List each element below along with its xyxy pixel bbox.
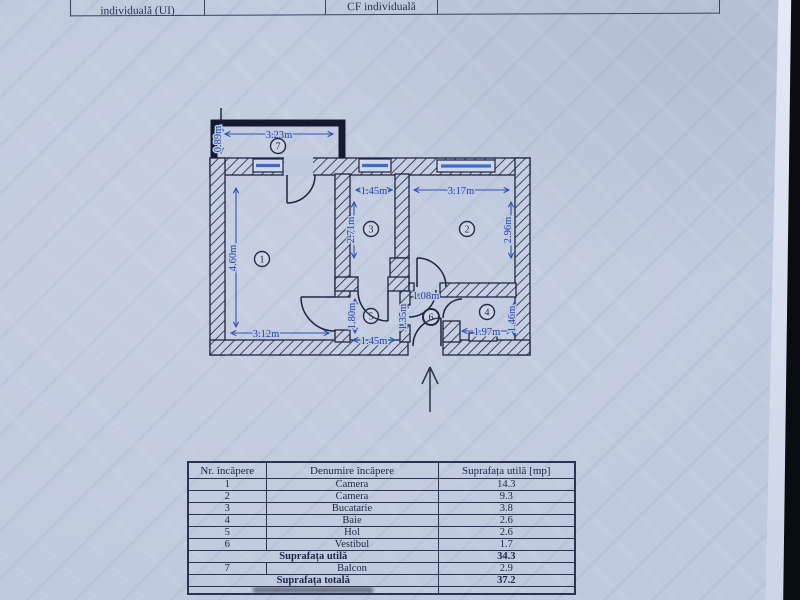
cell-area: 3.8 [438,503,575,515]
cell-nr: 6 [188,539,266,551]
svg-text:4: 4 [485,308,490,319]
room-number-5: 5 [364,309,379,324]
cell-nr: 4 [188,515,266,527]
cell-nr: 3 [188,503,266,515]
cell-name: Camera [266,491,438,503]
dim-label: 0.89m [213,126,224,153]
dim-label: 1.35m [398,304,409,331]
dim-label: 3.17m [448,186,475,197]
total-row: Suprafața totală 37.2 [188,575,575,587]
table-row: 4 Baie 2.6 [188,515,575,527]
dim-label: 1.80m [347,303,358,330]
window [437,160,495,172]
svg-text:7: 7 [276,142,281,153]
window [253,159,283,172]
subtotal-label: Suprafața utilă [188,551,438,563]
room-number-4: 4 [480,305,495,320]
cell-nr: 1 [188,479,266,491]
room-number-3: 3 [364,222,379,237]
cell-name: Vestibul [266,539,438,551]
cell-name: Balcon [266,563,438,575]
window [359,159,391,172]
table-row: 3 Bucatarie 3.8 [188,503,575,515]
table-row: 1 Camera 14.3 [188,479,575,491]
total-label: Suprafața totală [188,575,438,587]
table-row: 2 Camera 9.3 [188,491,575,503]
table-row-balcony: 7 Balcon 2.9 [188,563,575,575]
north-arrow-icon [422,367,438,412]
svg-text:1: 1 [260,255,265,266]
room-number-7: 7 [271,139,286,154]
cell-area: 2.6 [438,515,575,527]
room-number-1: 1 [255,252,270,267]
cell-area: 2.9 [438,563,575,575]
cutoff-text-smudge [253,587,373,593]
cutoff-row [188,587,575,595]
door-arc-balcony [287,175,315,203]
photo-of-document: individuală (UI) CF individuală [0,0,800,600]
dim-label: 2.96m [503,217,514,244]
dim-label: 1.46m [507,306,518,333]
dim-label: 1.97m [474,327,501,338]
svg-text:6: 6 [429,313,434,324]
col-header-nr: Nr. încăpere [188,462,266,479]
subtotal-value: 34.3 [438,551,575,563]
table-row: 6 Vestibul 1.7 [188,539,575,551]
dim-label: 2.71m [346,217,357,244]
subtotal-row: Suprafața utilă 34.3 [188,551,575,563]
dim-label: 1.45m [361,186,388,197]
document-page: individuală (UI) CF individuală [0,0,800,600]
cell-nr: 2 [188,491,266,503]
cell-area: 9.3 [438,491,575,503]
cell-area: 1.7 [438,539,575,551]
room-number-6: 6 [423,309,439,325]
cell-name: Hol [266,527,438,539]
cell-name: Camera [266,479,438,491]
cell-name: Bucatarie [266,503,438,515]
cell-nr: 5 [188,527,266,539]
cell-area: 2.6 [438,527,575,539]
col-header-name: Denumire încăpere [266,462,438,479]
cutoff-cell [188,587,438,595]
door-arc-room1 [301,297,335,331]
area-table-header-row: Nr. încăpere Denumire încăpere Suprafața… [188,462,575,479]
svg-text:2: 2 [465,225,470,236]
dim-label: 1.45m [361,336,388,347]
door-arc-bath [443,299,462,318]
room-number-2: 2 [460,222,475,237]
cell-area: 14.3 [438,479,575,491]
cutoff-cell [438,587,575,595]
cell-name: Baie [266,515,438,527]
dim-label: 3.12m [253,329,280,340]
svg-text:3: 3 [369,225,374,236]
total-value: 37.2 [438,575,575,587]
area-table: Nr. încăpere Denumire încăpere Suprafața… [187,461,576,595]
table-row: 5 Hol 2.6 [188,527,575,539]
col-header-area: Suprafața utilă [mp] [438,462,575,479]
dim-label: 1.08m [413,291,440,302]
svg-text:5: 5 [369,312,374,323]
dim-label: 4.60m [228,245,239,272]
cell-nr: 7 [188,563,266,575]
balcony-door-opening [284,157,313,176]
